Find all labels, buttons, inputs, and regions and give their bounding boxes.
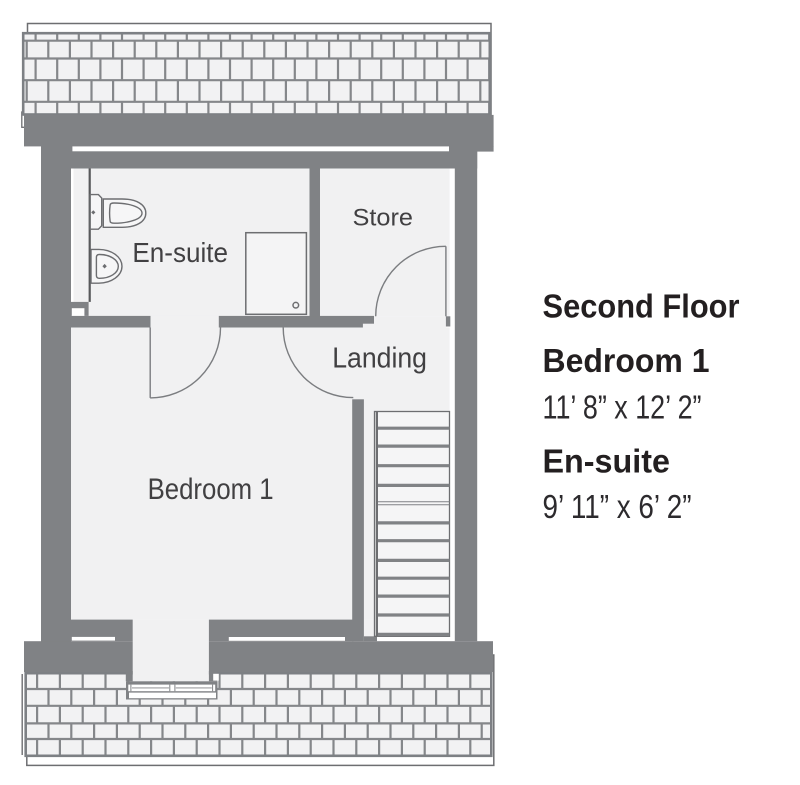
svg-text:11’ 8” x 12’ 2”: 11’ 8” x 12’ 2” <box>543 389 702 426</box>
svg-text:Second Floor: Second Floor <box>543 287 740 324</box>
svg-text:En-suite: En-suite <box>132 237 228 268</box>
svg-text:9’ 11” x 6’ 2”: 9’ 11” x 6’ 2” <box>543 488 692 525</box>
svg-text:Landing: Landing <box>332 342 427 374</box>
svg-text:En-suite: En-suite <box>543 443 671 480</box>
svg-text:Bedroom 1: Bedroom 1 <box>543 342 710 379</box>
svg-text:Store: Store <box>353 205 414 232</box>
svg-text:Bedroom 1: Bedroom 1 <box>148 473 274 506</box>
